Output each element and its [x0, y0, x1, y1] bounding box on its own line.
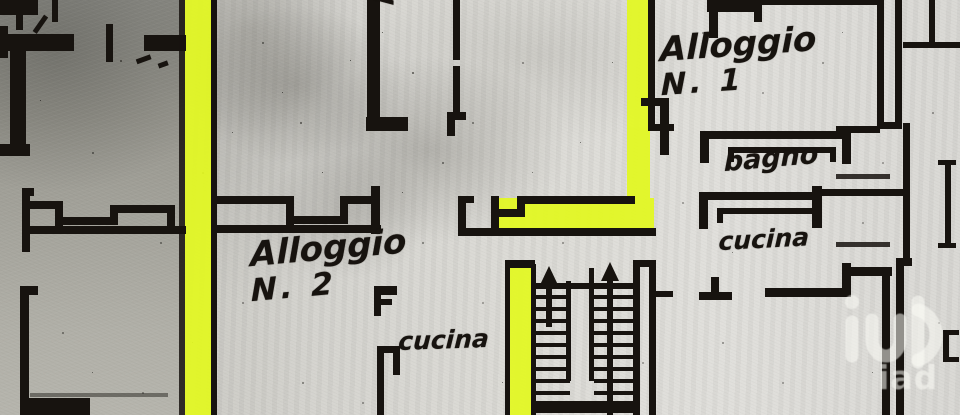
door-symbol — [699, 277, 732, 300]
kitchen-center-label: cucina — [398, 326, 490, 355]
apartment-1-label: Alloggio N. 1 — [660, 22, 816, 101]
floor-plan-scan: Alloggio N. 1 Alloggio N. 2 bagno cucina… — [0, 0, 960, 415]
apartment-2-label: Alloggio N. 2 — [250, 224, 407, 307]
kitchen-right-label: cucina — [718, 224, 809, 254]
